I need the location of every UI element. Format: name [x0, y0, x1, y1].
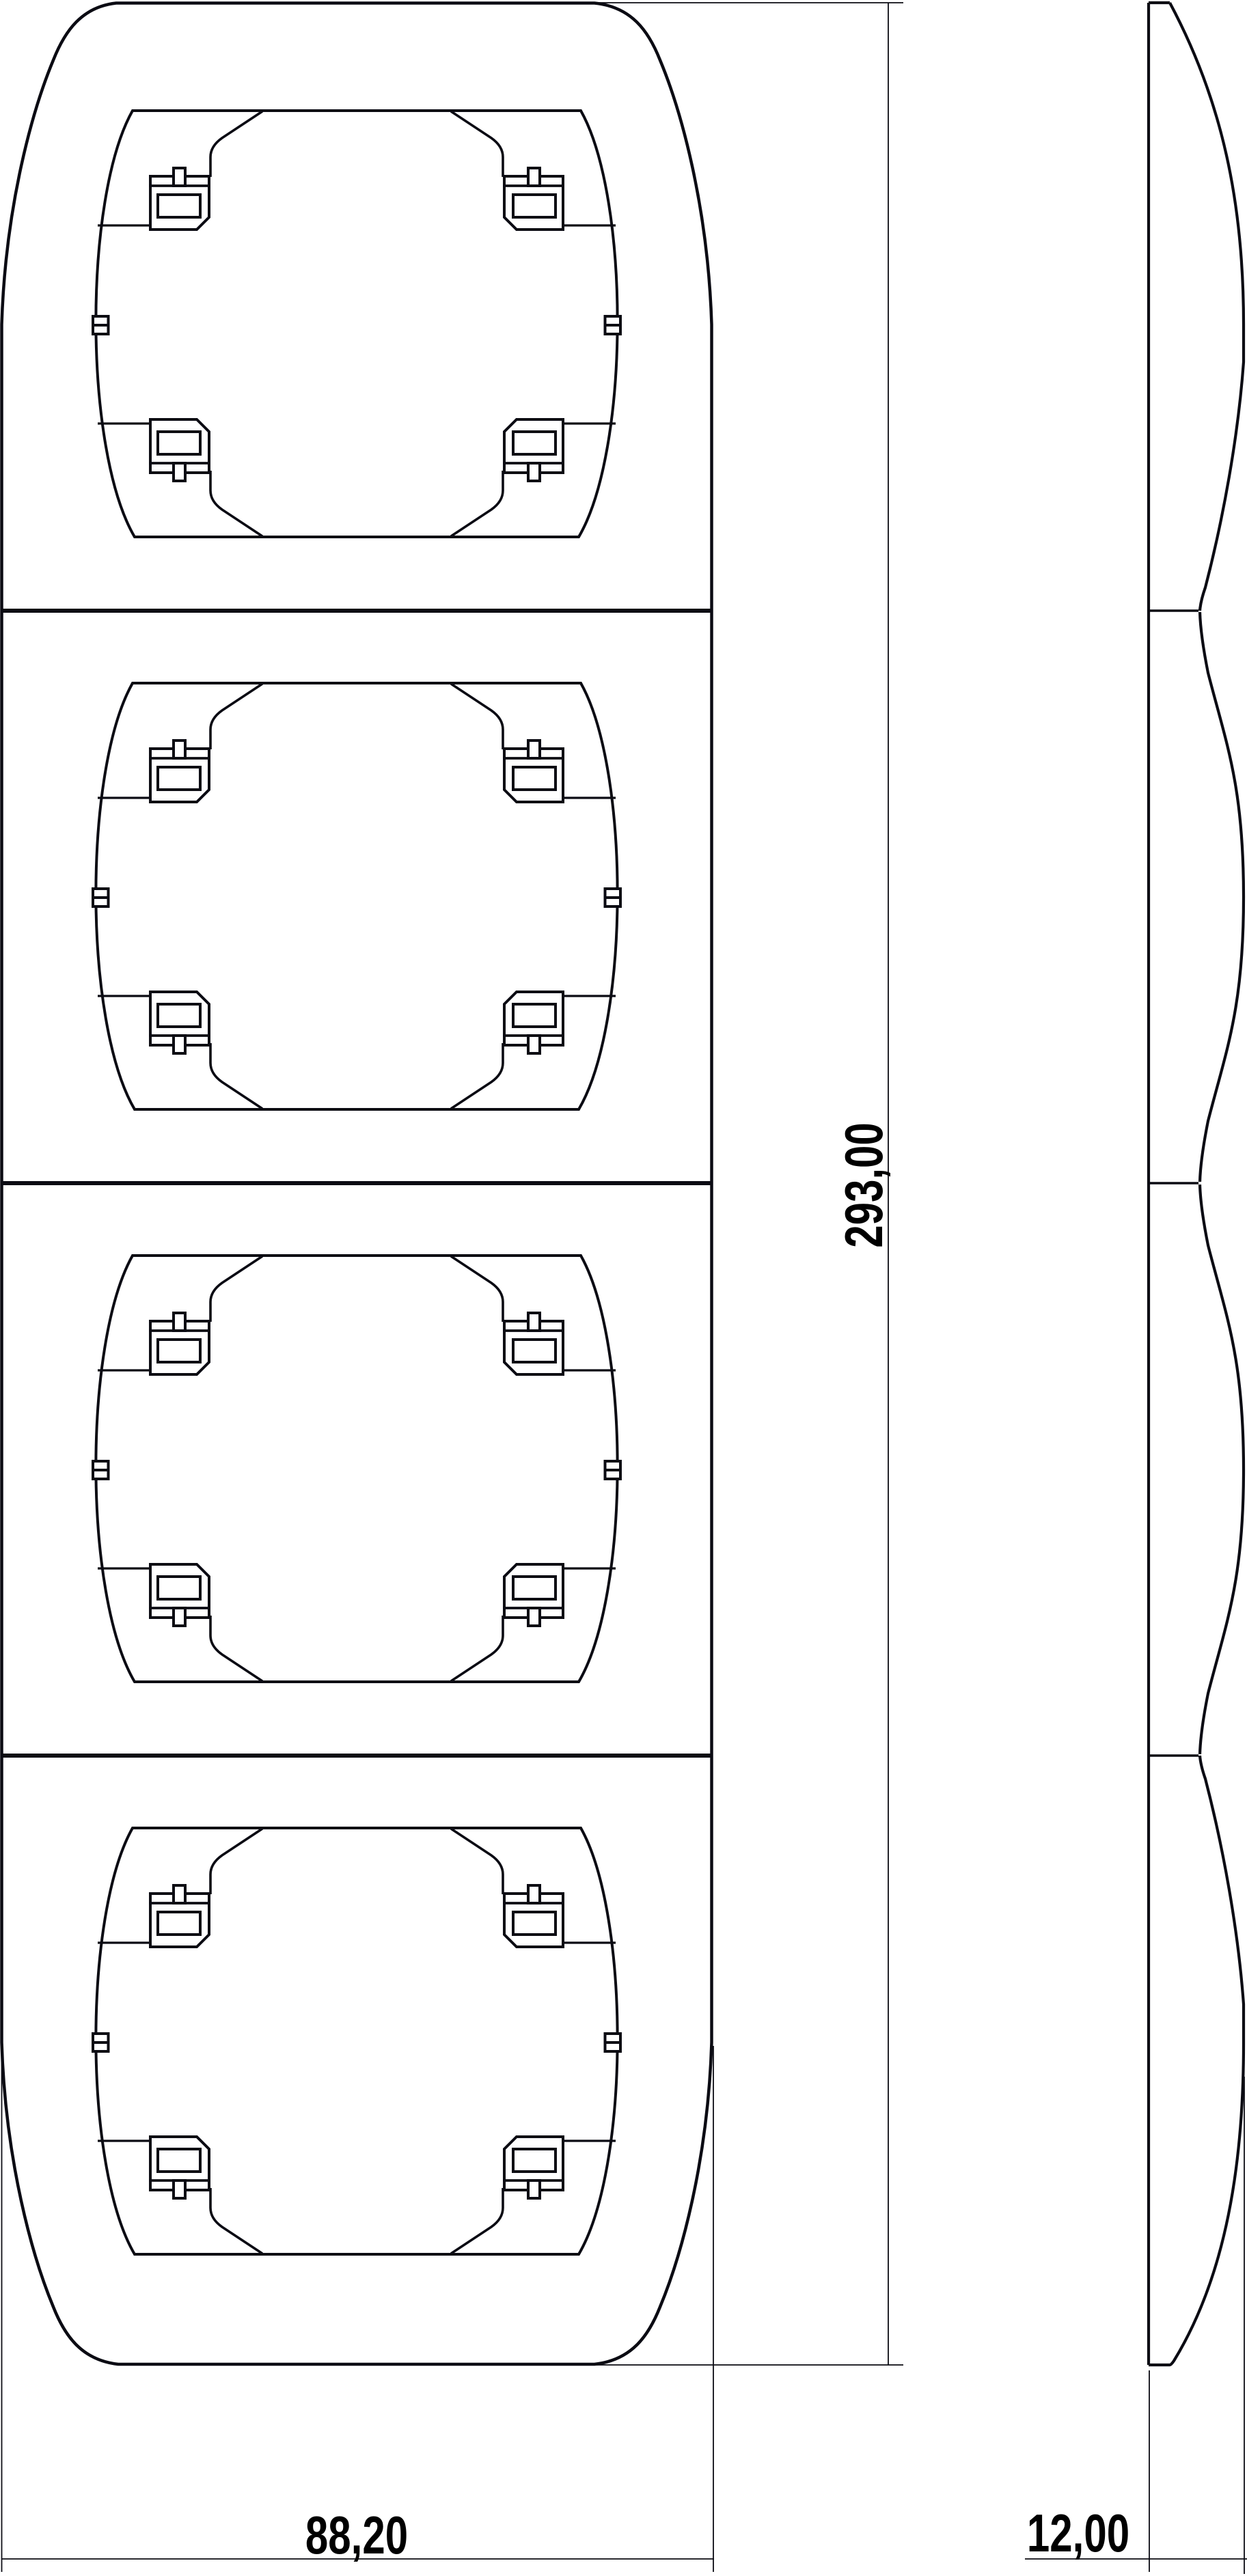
svg-text:12,00: 12,00 — [1027, 2503, 1129, 2562]
svg-text:293,00: 293,00 — [834, 1122, 893, 1248]
svg-text:88,20: 88,20 — [305, 2505, 408, 2564]
